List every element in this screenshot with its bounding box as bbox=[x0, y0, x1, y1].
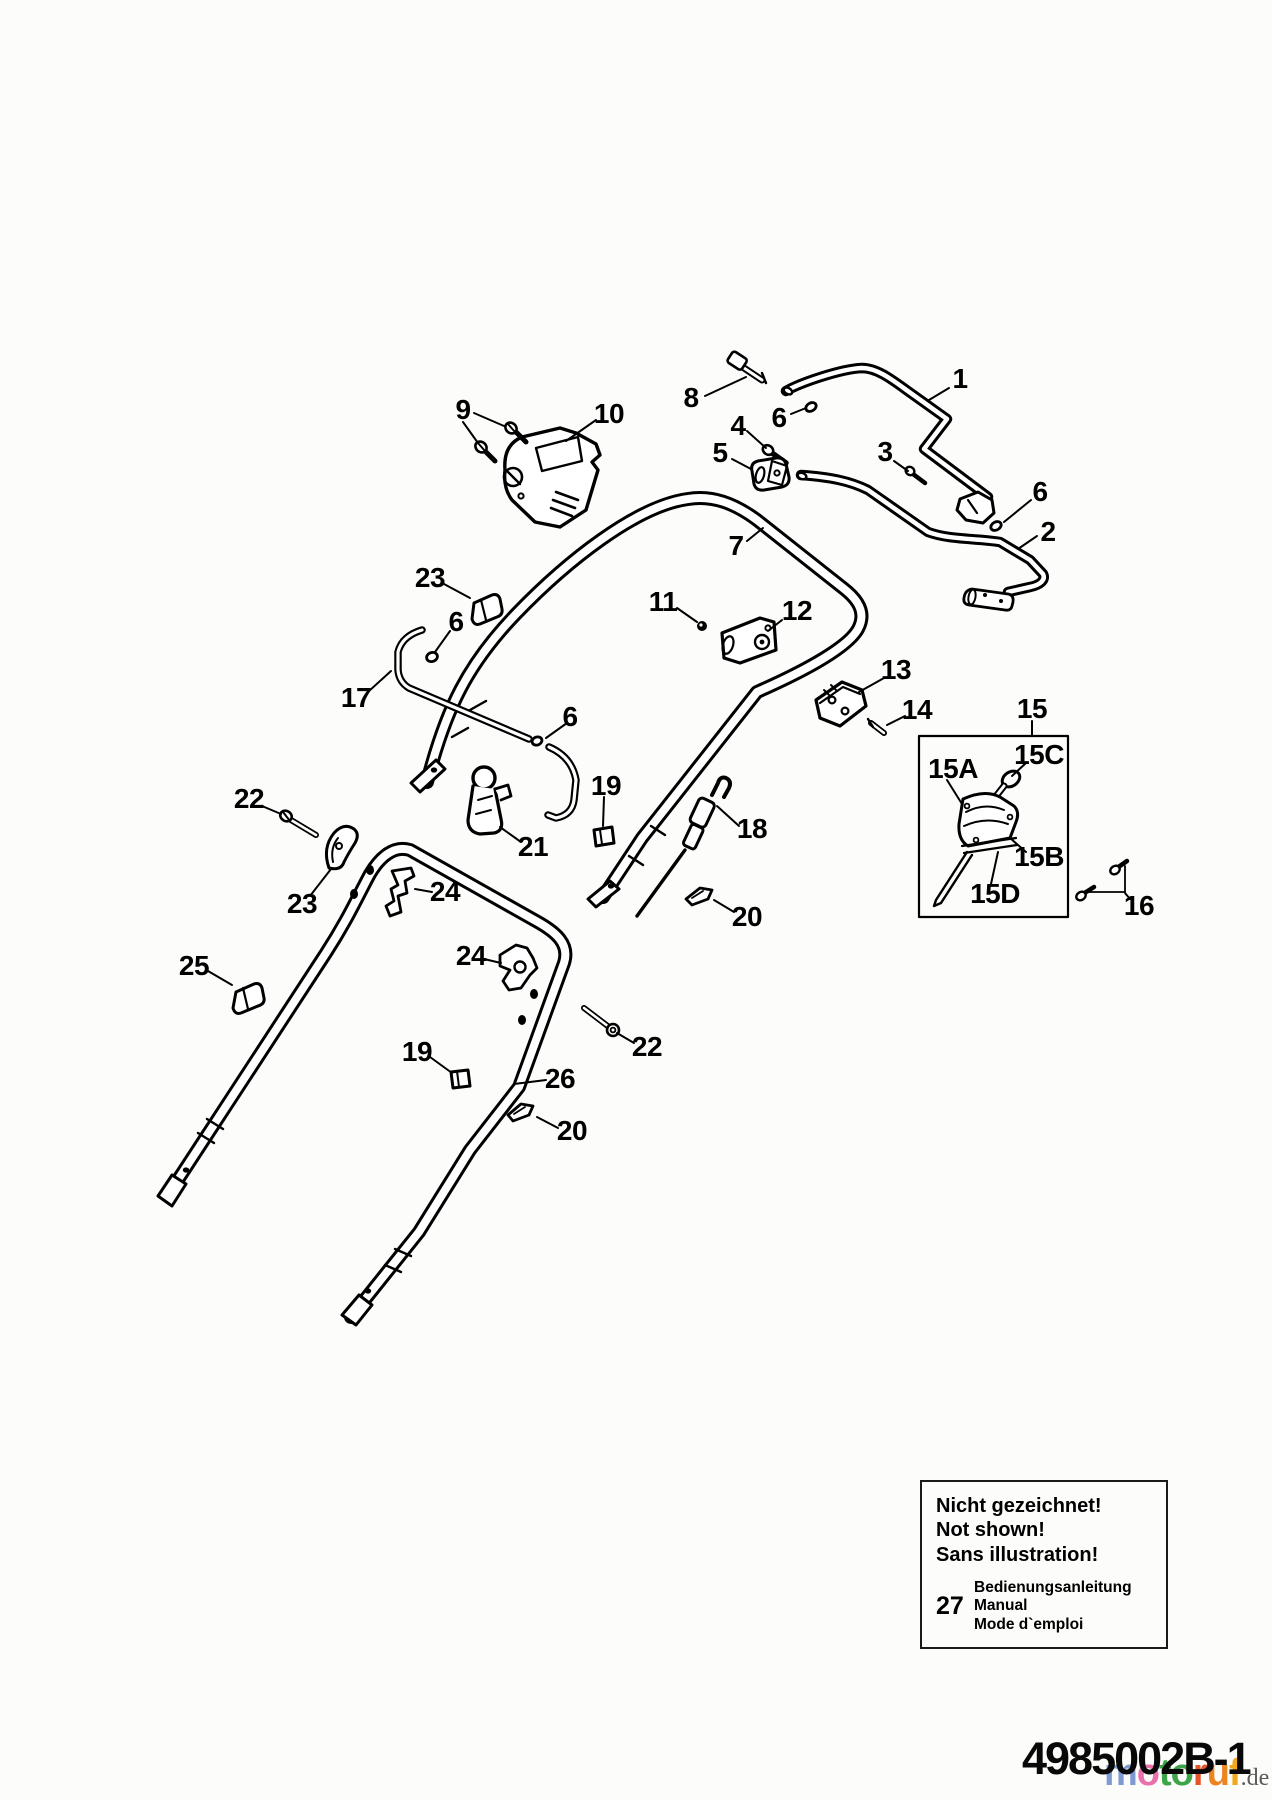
callout-26: 26 bbox=[545, 1063, 575, 1095]
leader-lines bbox=[208, 377, 1130, 1128]
cable-fitting-5 bbox=[752, 458, 790, 490]
not-shown-box: Nicht gezeichnet! Not shown! Sans illust… bbox=[920, 1480, 1168, 1649]
callout-15A: 15A bbox=[928, 753, 978, 785]
bowden-cable-18 bbox=[637, 778, 730, 916]
clip-24b bbox=[500, 945, 537, 990]
o-ring-6a bbox=[804, 401, 818, 413]
note-line-fr: Sans illustration! bbox=[936, 1543, 1156, 1567]
grommet-11 bbox=[697, 621, 707, 631]
switch-housing-10 bbox=[504, 428, 600, 527]
callout-7: 7 bbox=[728, 530, 743, 562]
callout-19b: 19 bbox=[402, 1036, 432, 1068]
screws-16 bbox=[1075, 861, 1127, 902]
callout-15D: 15D bbox=[970, 878, 1020, 910]
upper-handlebar bbox=[411, 498, 862, 907]
clamp-12 bbox=[720, 618, 776, 663]
callout-5: 5 bbox=[712, 437, 727, 469]
callout-20a: 20 bbox=[732, 901, 762, 933]
bracket-23b bbox=[326, 826, 357, 868]
note-item-line-en: Manual bbox=[974, 1597, 1132, 1615]
callout-8: 8 bbox=[683, 382, 698, 414]
callout-15C: 15C bbox=[1014, 739, 1064, 771]
callout-24a: 24 bbox=[430, 876, 460, 908]
callout-10: 10 bbox=[594, 398, 624, 430]
sleeve-23a bbox=[472, 595, 502, 625]
callout-6d: 6 bbox=[562, 701, 577, 733]
callout-20b: 20 bbox=[557, 1115, 587, 1147]
callout-12: 12 bbox=[782, 595, 812, 627]
nut-19a bbox=[594, 827, 614, 846]
callout-2: 2 bbox=[1040, 516, 1055, 548]
o-ring-6d bbox=[531, 736, 543, 747]
callout-23b: 23 bbox=[287, 888, 317, 920]
note-item-number: 27 bbox=[936, 1592, 974, 1621]
callout-22b: 22 bbox=[632, 1031, 662, 1063]
callout-11: 11 bbox=[649, 586, 678, 618]
note-line-de: Nicht gezeichnet! bbox=[936, 1494, 1156, 1518]
callout-15: 15 bbox=[1017, 693, 1047, 725]
pin-14 bbox=[868, 719, 884, 733]
note-item-line-fr: Mode d`emploi bbox=[974, 1616, 1132, 1634]
lower-handlebar bbox=[158, 849, 565, 1325]
callout-6b: 6 bbox=[448, 606, 463, 638]
callout-14: 14 bbox=[902, 694, 932, 726]
callout-17: 17 bbox=[341, 682, 371, 714]
o-ring-6c bbox=[989, 520, 1003, 532]
note-line-en: Not shown! bbox=[936, 1518, 1156, 1542]
callout-13: 13 bbox=[881, 654, 911, 686]
callout-16: 16 bbox=[1124, 890, 1154, 922]
sleeve-25 bbox=[233, 984, 264, 1014]
document-code: 4985002B-1 bbox=[1022, 1733, 1250, 1785]
screw-22a bbox=[278, 809, 316, 835]
bracket-13 bbox=[816, 682, 866, 726]
callout-15B: 15B bbox=[1014, 841, 1064, 873]
nut-19b bbox=[451, 1070, 470, 1088]
cable-guide-21 bbox=[468, 767, 511, 834]
callout-3: 3 bbox=[877, 436, 892, 468]
callout-9: 9 bbox=[455, 394, 470, 426]
callout-18: 18 bbox=[737, 813, 767, 845]
callout-22a: 22 bbox=[234, 783, 264, 815]
callout-21: 21 bbox=[518, 831, 548, 863]
bolt-8 bbox=[726, 351, 766, 383]
callout-6a: 6 bbox=[771, 402, 786, 434]
note-item-row: 27 Bedienungsanleitung Manual Mode d`emp… bbox=[936, 1579, 1156, 1634]
screw-3 bbox=[904, 465, 925, 483]
wedge-20a bbox=[686, 888, 712, 905]
o-ring-6b bbox=[425, 651, 438, 663]
clip-24a bbox=[386, 868, 414, 916]
note-item-descriptions: Bedienungsanleitung Manual Mode d`emploi bbox=[974, 1579, 1132, 1634]
callout-24b: 24 bbox=[456, 940, 486, 972]
callout-19a: 19 bbox=[591, 770, 621, 802]
callout-23a: 23 bbox=[415, 562, 445, 594]
diagram-canvas: 12345666678910111213141515A15B15C15D1617… bbox=[0, 0, 1272, 1800]
callout-6c: 6 bbox=[1032, 476, 1047, 508]
callout-25: 25 bbox=[179, 950, 209, 982]
note-item-line-de: Bedienungsanleitung bbox=[974, 1579, 1132, 1597]
screw-22b bbox=[584, 1008, 619, 1036]
callout-1: 1 bbox=[952, 363, 967, 395]
callout-4: 4 bbox=[730, 410, 745, 442]
